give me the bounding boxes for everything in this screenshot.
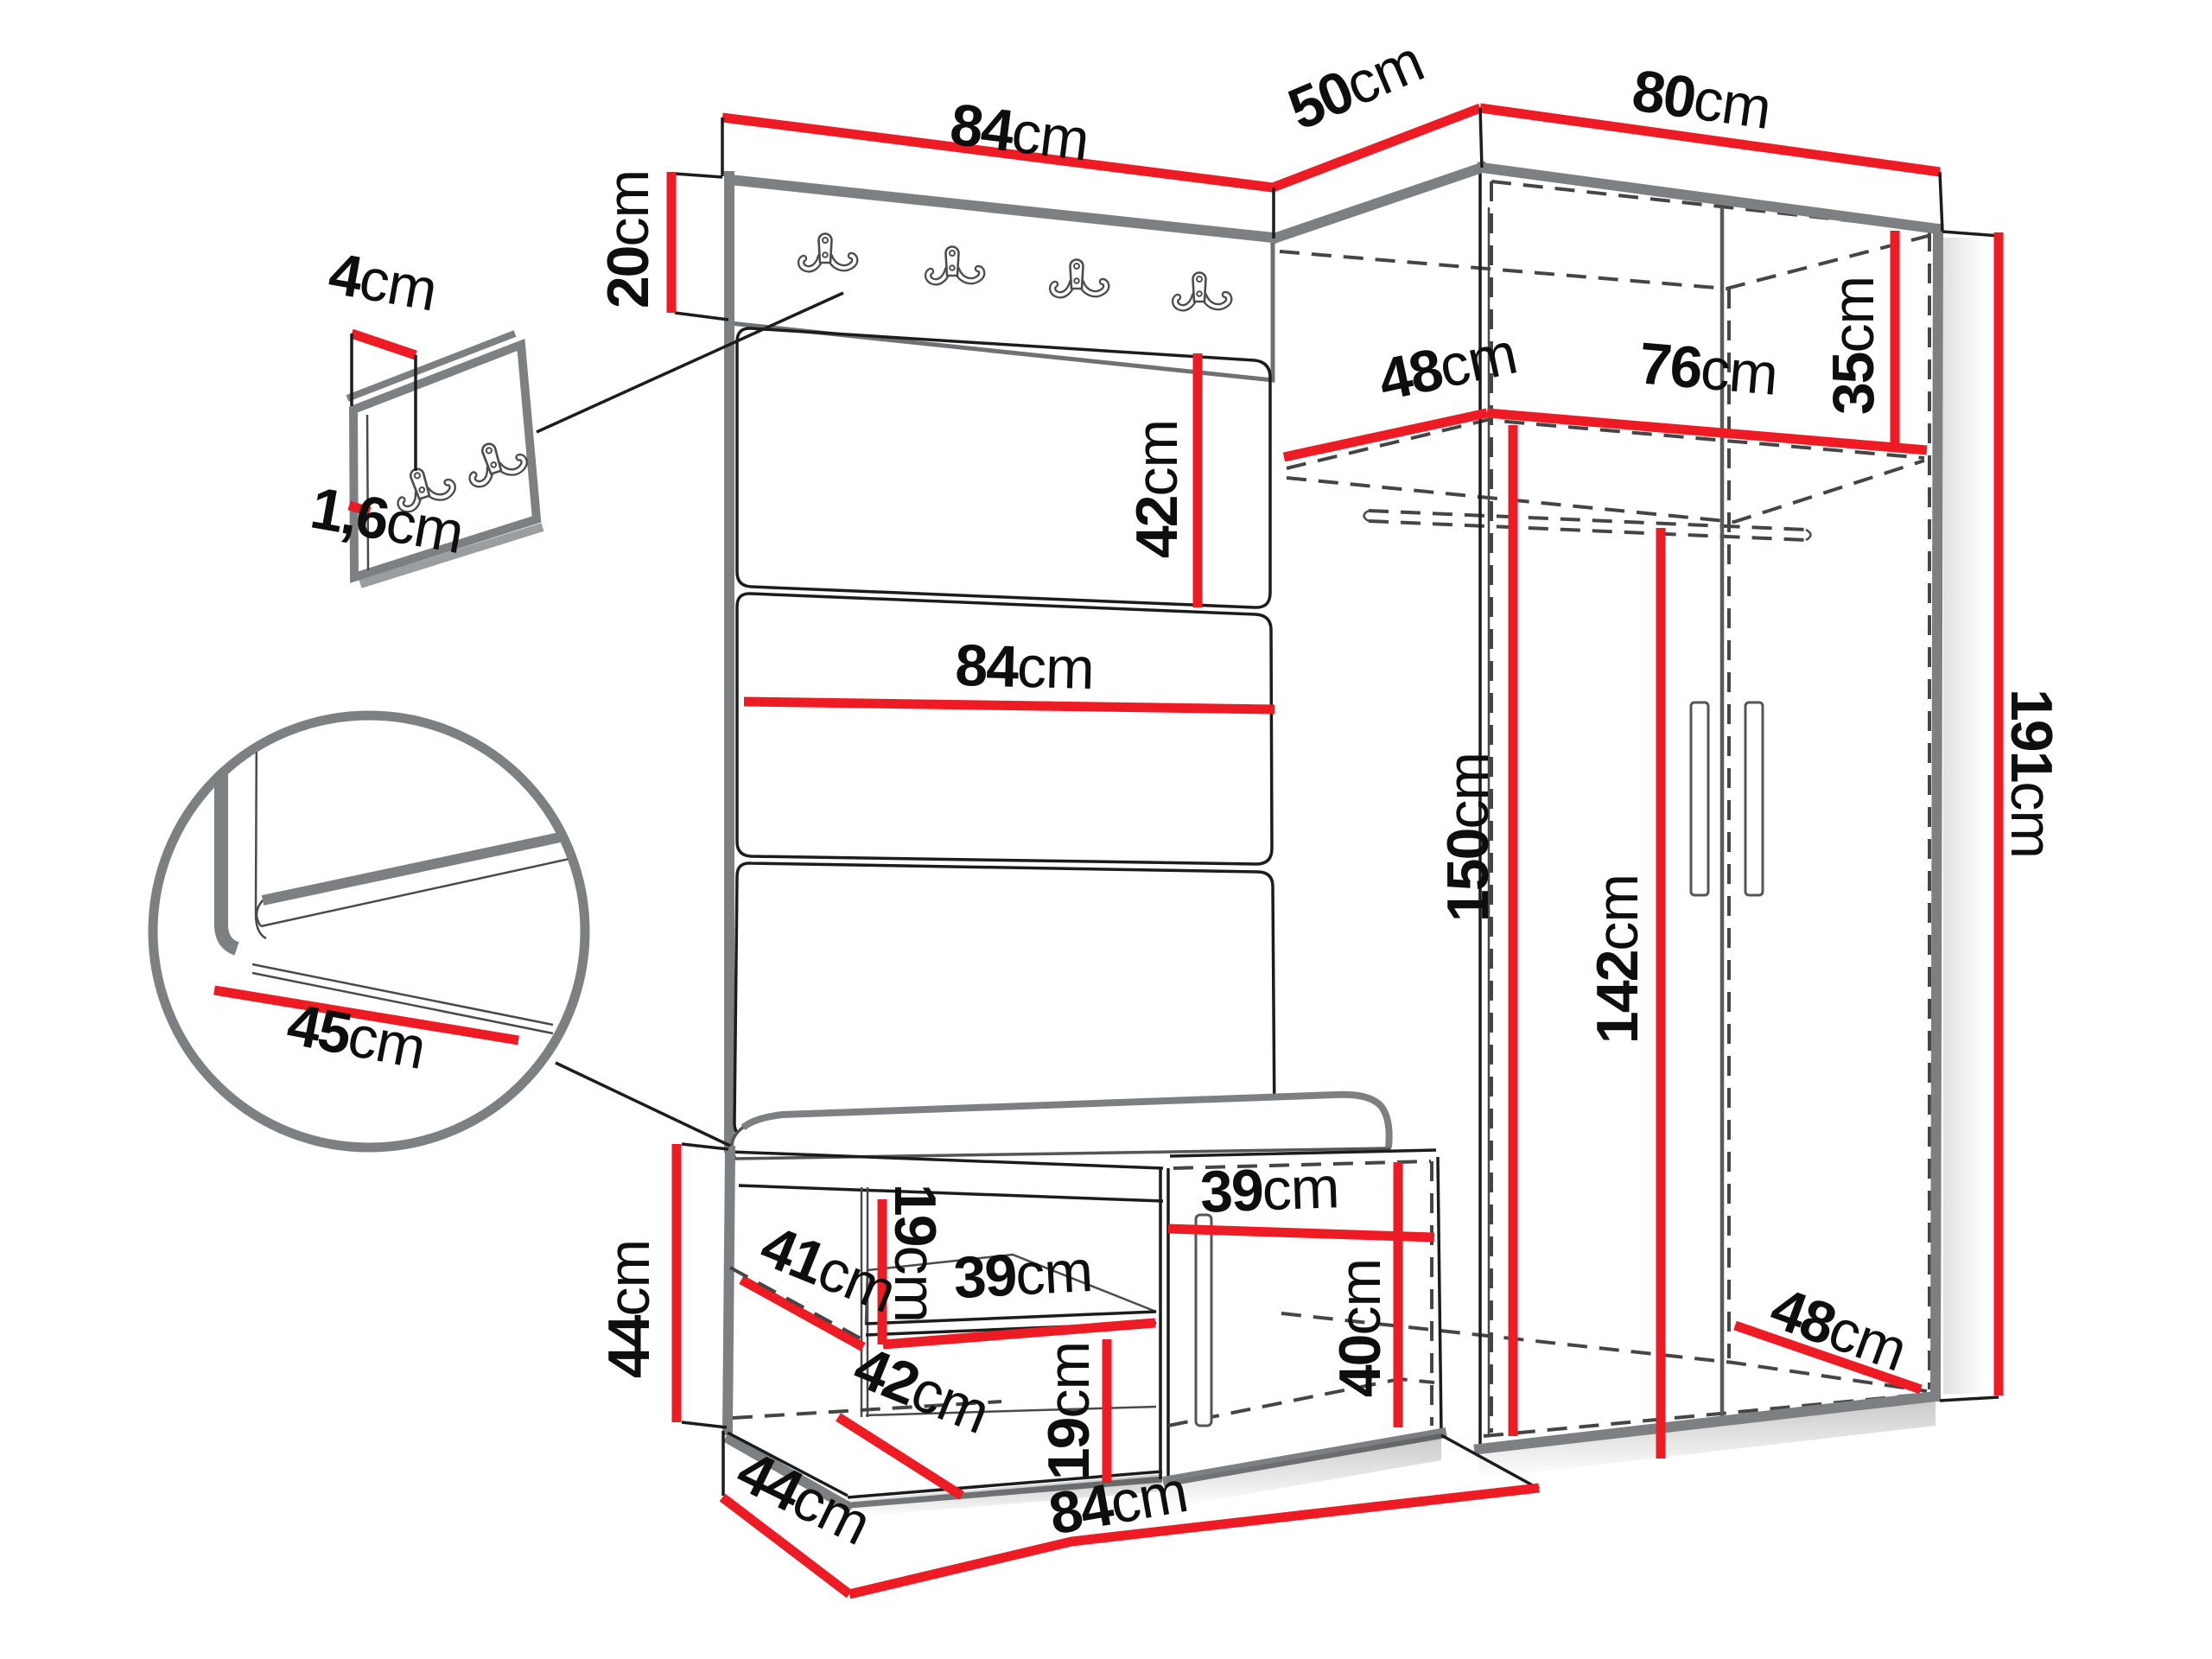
svg-text:142cm: 142cm [1585, 874, 1650, 1044]
svg-text:35cm: 35cm [1821, 276, 1886, 415]
svg-text:20cm: 20cm [595, 170, 661, 308]
svg-text:150cm: 150cm [1435, 753, 1501, 922]
svg-text:40cm: 40cm [1327, 1259, 1393, 1397]
svg-text:191cm: 191cm [1999, 689, 2064, 858]
svg-text:19cm: 19cm [1036, 1342, 1102, 1480]
svg-text:44cm: 44cm [596, 1240, 662, 1378]
svg-text:84cm: 84cm [954, 632, 1094, 702]
svg-text:42cm: 42cm [1124, 420, 1190, 558]
svg-text:76cm: 76cm [1637, 330, 1780, 408]
svg-text:39cm: 39cm [952, 1238, 1094, 1311]
svg-text:19cm: 19cm [882, 1184, 948, 1322]
svg-text:39cm: 39cm [1199, 1154, 1340, 1225]
